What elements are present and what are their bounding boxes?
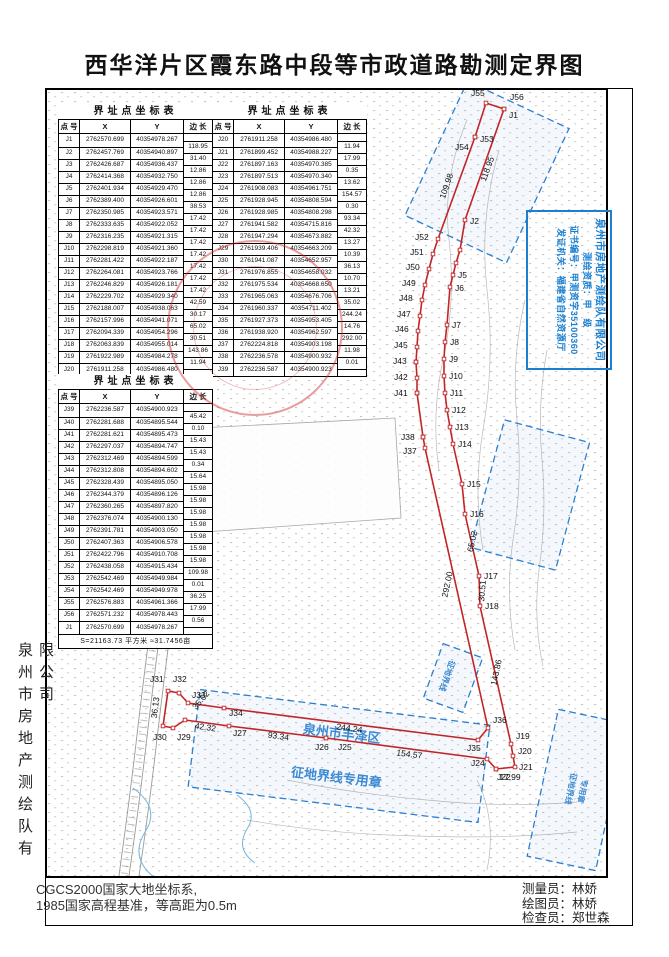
table-cell: 2762298.819 — [80, 243, 131, 255]
boundary-point-marker — [448, 285, 452, 289]
column-header: X — [80, 390, 131, 404]
boundary-point-marker — [454, 261, 458, 265]
boundary-point-marker — [478, 604, 482, 608]
table-cell: 2762576.883 — [80, 597, 131, 609]
boundary-point-marker — [416, 329, 420, 333]
point-label: J18 — [485, 601, 499, 611]
table-cell: 2762389.400 — [80, 195, 131, 207]
point-label: J54 — [455, 142, 469, 152]
table-cell: 2762401.934 — [80, 183, 131, 195]
table-cell: 2761928.945 — [234, 195, 285, 207]
table-cell: J42 — [59, 441, 80, 453]
table-cell: 17.42 — [184, 225, 213, 237]
separator: ： — [560, 897, 573, 911]
table-cell: J3 — [59, 159, 80, 171]
table-cell: J19 — [59, 351, 80, 363]
table-cell: J48 — [59, 513, 80, 525]
point-label: J14 — [458, 439, 472, 449]
table-cell: 40354900.923 — [131, 404, 184, 418]
table-cell: 2762542.469 — [80, 585, 131, 597]
point-label: J15 — [467, 479, 481, 489]
table-cell: J28 — [213, 231, 234, 243]
table-cell: 2761911.258 — [234, 134, 285, 148]
table-cell: 17.99 — [338, 153, 367, 165]
point-label: J17 — [484, 571, 498, 581]
boundary-point-marker — [511, 754, 515, 758]
table-cell: 93.34 — [338, 213, 367, 225]
point-label: J2 — [470, 216, 479, 226]
table-cell: 40354894.602 — [131, 465, 184, 477]
boundary-point-marker — [448, 425, 452, 429]
table-cell: 40354922.187 — [131, 255, 184, 267]
table-cell: 11.98 — [338, 345, 367, 357]
table-cell: J6 — [59, 195, 80, 207]
license-stamp-issuer: 发证机关：福建省自然资源厅 — [554, 212, 567, 368]
table-cell: 40354896.126 — [131, 489, 184, 501]
boundary-point-marker — [415, 376, 419, 380]
boundary-point-marker — [458, 248, 462, 252]
table-cell: 40354903.050 — [131, 525, 184, 537]
table-cell: 109.98 — [184, 567, 213, 579]
point-label: J20 — [518, 746, 532, 756]
table-cell: 15.43 — [184, 435, 213, 447]
column-header: Y — [131, 120, 184, 134]
table-cell: J8 — [59, 219, 80, 231]
point-label: J1 — [509, 110, 518, 120]
red-seal-inner-ring — [193, 266, 317, 390]
table-cell: 12.86 — [184, 165, 213, 177]
point-label: J45 — [394, 340, 408, 350]
table-cell: 40354895.544 — [131, 417, 184, 429]
table-cell: 2762297.037 — [80, 441, 131, 453]
table-cell: 40354808.298 — [285, 207, 338, 219]
table-cell: 13.27 — [338, 237, 367, 249]
boundary-point-marker — [473, 135, 477, 139]
table-cell: J15 — [59, 303, 80, 315]
table-cell: 0.30 — [338, 201, 367, 213]
table-cell: 15.43 — [184, 447, 213, 459]
surveyor-name: 林娇 — [572, 882, 597, 896]
table-cell: 2762312.469 — [80, 453, 131, 465]
table-cell: 40354949.978 — [131, 585, 184, 597]
table-cell: 0.56 — [184, 615, 213, 627]
point-label: J12 — [452, 405, 466, 415]
checker-row: 检查员：郑世森 — [522, 911, 610, 926]
point-label: J27 — [233, 728, 247, 738]
license-stamp-grade: 测绘资质：甲 级 — [580, 212, 593, 368]
column-header: 点 号 — [59, 120, 80, 134]
table-cell: 40354961.366 — [131, 597, 184, 609]
table-cell: 40354921.360 — [131, 243, 184, 255]
table-cell: 17.99 — [184, 603, 213, 615]
table-cell: 35.02 — [338, 297, 367, 309]
table-cell: 40354921.315 — [131, 231, 184, 243]
table-cell: 2762344.379 — [80, 489, 131, 501]
table-cell: 15.98 — [184, 483, 213, 495]
table-cell: 2762414.368 — [80, 171, 131, 183]
table-cell: 2762316.235 — [80, 231, 131, 243]
boundary-point-marker — [418, 314, 422, 318]
credits-block: 测量员：林娇 绘图员：林娇 检查员：郑世森 — [522, 882, 610, 926]
table-cell: J22 — [213, 159, 234, 171]
table-cell: 154.57 — [338, 189, 367, 201]
table-cell: J53 — [59, 573, 80, 585]
table-cell: 118.95 — [184, 141, 213, 153]
table-cell: 13.21 — [338, 285, 367, 297]
point-label: J16 — [470, 509, 484, 519]
table-cell: 2761897.513 — [234, 171, 285, 183]
table-cell: 40354926.601 — [131, 195, 184, 207]
table-cell: J12 — [59, 267, 80, 279]
table-cell: 40354970.340 — [285, 171, 338, 183]
compound-outline — [199, 418, 401, 532]
boundary-point-marker — [222, 706, 226, 710]
table-cell: J41 — [59, 429, 80, 441]
table-cell: 2762246.829 — [80, 279, 131, 291]
boundary-point-marker — [484, 101, 488, 105]
table-cell: J11 — [59, 255, 80, 267]
table-cell: 2762236.587 — [80, 404, 131, 418]
table-cell: 15.98 — [184, 507, 213, 519]
table-cell: J21 — [213, 147, 234, 159]
boundary-point-marker — [171, 726, 175, 730]
point-label: J19 — [516, 731, 530, 741]
table-cell: 17.42 — [184, 213, 213, 225]
boundary-point-table: 点 号XY边 长J392762236.58740354900.923 45.42… — [58, 389, 213, 649]
table-cell: J44 — [59, 465, 80, 477]
table-cell: 0.34 — [184, 459, 213, 471]
column-header: 点 号 — [213, 120, 234, 134]
point-label: J48 — [399, 293, 413, 303]
table-cell: 31.40 — [184, 153, 213, 165]
separator: ： — [560, 911, 573, 925]
table-cell: J16 — [59, 315, 80, 327]
table-cell: 40354915.434 — [131, 561, 184, 573]
boundary-point-marker — [486, 726, 490, 730]
point-label: J55 — [471, 90, 485, 98]
table-cell: 45.42 — [184, 411, 213, 423]
table-cell: J47 — [59, 501, 80, 513]
boundary-point-marker — [161, 724, 165, 728]
point-label: J11 — [450, 388, 463, 398]
checker-label: 检查员 — [522, 911, 560, 925]
table-cell: J40 — [59, 417, 80, 429]
table-cell: J17 — [59, 327, 80, 339]
table-cell: 2762426.687 — [80, 159, 131, 171]
license-stamp-company: 泉州市房地产测绘队有限公司 — [593, 212, 607, 368]
point-label: J46 — [395, 324, 409, 334]
boundary-point-marker — [423, 446, 427, 450]
column-header: Y — [131, 390, 184, 404]
point-label: J25 — [338, 742, 352, 752]
point-label: J31 — [150, 674, 164, 684]
table-cell: 2762281.422 — [80, 255, 131, 267]
table-cell: 15.98 — [184, 543, 213, 555]
table-cell: 40354910.708 — [131, 549, 184, 561]
table-cell: J55 — [59, 597, 80, 609]
table-cell: 2762360.265 — [80, 501, 131, 513]
table-cell: J1 — [59, 134, 80, 148]
table-cell: 2762312.808 — [80, 465, 131, 477]
table-cell: J54 — [59, 585, 80, 597]
table-cell: 40354906.578 — [131, 537, 184, 549]
point-label: J7 — [452, 320, 461, 330]
table-cell: 40354978.443 — [131, 609, 184, 621]
margin-company-name: 泉州市房地产测绘队有限公司 — [14, 642, 56, 882]
table-cell: J18 — [59, 339, 80, 351]
table-cell: 40354929.470 — [131, 183, 184, 195]
table-title: 界址点坐标表 — [58, 104, 213, 119]
table-cell: 40354808.594 — [285, 195, 338, 207]
table-cell: 40354986.480 — [285, 134, 338, 148]
table-cell: 2762542.469 — [80, 573, 131, 585]
table-cell: 2762376.074 — [80, 513, 131, 525]
table-cell: 40354897.820 — [131, 501, 184, 513]
boundary-point-marker — [183, 718, 187, 722]
point-label: J32 — [173, 674, 187, 684]
column-header: 边 长 — [184, 120, 213, 134]
table-cell: J25 — [213, 195, 234, 207]
point-label: J13 — [455, 422, 469, 432]
table-cell: 2761941.582 — [234, 219, 285, 231]
table-cell: 40354932.750 — [131, 171, 184, 183]
drafter-label: 绘图员 — [522, 897, 560, 911]
table-cell: 15.64 — [184, 471, 213, 483]
table-cell: 40354923.766 — [131, 267, 184, 279]
table-cell: 40354894.747 — [131, 441, 184, 453]
segment-length-label: 30.51 — [476, 579, 488, 601]
boundary-point-marker — [414, 360, 418, 364]
table-cell: J23 — [213, 171, 234, 183]
point-label: J43 — [393, 356, 407, 366]
surveyor-label: 测量员 — [522, 882, 560, 896]
boundary-point-marker — [427, 267, 431, 271]
coordinate-table-3: 界址点坐标表点 号XY边 长J392762236.58740354900.923… — [58, 374, 213, 649]
table-cell: 11.94 — [338, 141, 367, 153]
point-label: J52 — [415, 232, 429, 242]
boundary-point-marker — [324, 736, 328, 740]
table-cell: J45 — [59, 477, 80, 489]
table-cell: 2762188.007 — [80, 303, 131, 315]
table-cell: 36.25 — [184, 591, 213, 603]
point-label: J30 — [153, 732, 167, 742]
table-cell: 2761908.083 — [234, 183, 285, 195]
table-cell — [184, 134, 213, 142]
point-label: J36 — [493, 715, 507, 725]
point-label: J35 — [467, 743, 481, 753]
table-cell: 2762350.985 — [80, 207, 131, 219]
table-cell: J10 — [59, 243, 80, 255]
table-cell: J26 — [213, 207, 234, 219]
boundary-point-marker — [431, 252, 435, 256]
boundary-point-marker — [423, 283, 427, 287]
boundary-point-marker — [445, 323, 449, 327]
table-cell: 2761899.452 — [234, 147, 285, 159]
table-cell: J4 — [59, 171, 80, 183]
boundary-point-marker — [436, 237, 440, 241]
table-cell: J20 — [213, 134, 234, 148]
table-cell: 2761897.163 — [234, 159, 285, 171]
separator: ： — [560, 882, 573, 896]
table-cell: 0.01 — [184, 579, 213, 591]
page-title: 西华洋片区霞东路中段等市政道路勘测定界图 — [45, 46, 624, 80]
table-cell: 2762328.439 — [80, 477, 131, 489]
table-cell: J50 — [59, 537, 80, 549]
boundary-point-marker — [443, 340, 447, 344]
boundary-point-marker — [451, 442, 455, 446]
boundary-point-marker — [177, 691, 181, 695]
table-cell: 2762157.996 — [80, 315, 131, 327]
table-cell: 40354988.227 — [285, 147, 338, 159]
table-cell: J52 — [59, 561, 80, 573]
boundary-point-marker — [442, 374, 446, 378]
boundary-point-marker — [420, 298, 424, 302]
table-cell — [184, 404, 213, 412]
point-label: J6 — [455, 283, 464, 293]
boundary-point-marker — [451, 273, 455, 277]
boundary-point-marker — [494, 767, 498, 771]
table-cell: J49 — [59, 525, 80, 537]
boundary-point-marker — [476, 738, 480, 742]
table-cell: J9 — [59, 231, 80, 243]
table-cell: 42.32 — [338, 225, 367, 237]
table-cell: 2762063.839 — [80, 339, 131, 351]
table-cell: J7 — [59, 207, 80, 219]
table-cell: J13 — [59, 279, 80, 291]
table-cell: 2761922.989 — [80, 351, 131, 363]
point-label: J51 — [410, 247, 424, 257]
table-cell: 40354978.267 — [131, 134, 184, 148]
table-cell: 2762438.058 — [80, 561, 131, 573]
license-stamp-certificate: 证书编号：甲测资字35100360 — [567, 212, 580, 368]
boundary-point-marker — [186, 701, 190, 705]
segment-length-label: 17.99 — [499, 772, 521, 782]
point-label: J34 — [229, 708, 243, 718]
red-seal-stamp — [167, 240, 343, 416]
table-cell: 2762281.688 — [80, 417, 131, 429]
boundary-point-marker — [485, 757, 489, 761]
license-stamp: 泉州市房地产测绘队有限公司 测绘资质：甲 级 证书编号：甲测资字35100360… — [526, 210, 612, 370]
table-cell: 2762229.702 — [80, 291, 131, 303]
boundary-point-marker — [166, 689, 170, 693]
point-label: J5 — [458, 270, 467, 280]
survey-sheet: 西华洋片区霞东路中段等市政道路勘测定界图 — [0, 0, 669, 957]
table-cell: 40354978.267 — [131, 621, 184, 635]
point-label: J42 — [394, 372, 408, 382]
point-label: J21 — [519, 762, 533, 772]
table-cell: 12.86 — [184, 177, 213, 189]
table-cell: 2762264.081 — [80, 267, 131, 279]
table-title: 界址点坐标表 — [212, 104, 367, 119]
datum-notes: CGCS2000国家大地坐标系, 1985国家高程基准，等高距为0.5m — [36, 882, 237, 914]
table-cell: 40354673.882 — [285, 231, 338, 243]
point-label: J56 — [510, 92, 524, 102]
boundary-point-marker — [477, 574, 481, 578]
boundary-point-marker — [415, 345, 419, 349]
point-label: J37 — [403, 446, 417, 456]
boundary-point-marker — [463, 512, 467, 516]
table-cell: J27 — [213, 219, 234, 231]
surveyor-row: 测量员：林娇 — [522, 882, 610, 897]
table-cell: J43 — [59, 453, 80, 465]
table-cell: 40354923.571 — [131, 207, 184, 219]
boundary-point-marker — [415, 391, 419, 395]
boundary-point-marker — [460, 482, 464, 486]
point-label: J49 — [402, 278, 416, 288]
table-cell: 40354895.473 — [131, 429, 184, 441]
point-label: J24 — [471, 758, 485, 768]
table-cell: 12.86 — [184, 189, 213, 201]
table-cell: 40354940.897 — [131, 147, 184, 159]
column-header: 边 长 — [338, 120, 367, 134]
table-cell — [338, 134, 367, 142]
table-cell: 40354936.437 — [131, 159, 184, 171]
point-label: J53 — [480, 134, 494, 144]
table-cell: 2762571.232 — [80, 609, 131, 621]
table-cell: 40354894.599 — [131, 453, 184, 465]
point-label: J50 — [406, 262, 420, 272]
column-header: Y — [285, 120, 338, 134]
column-header: X — [234, 120, 285, 134]
table-cell: 15.98 — [184, 495, 213, 507]
table-cell: 2762281.621 — [80, 429, 131, 441]
table-cell: J51 — [59, 549, 80, 561]
table-cell: 40354949.984 — [131, 573, 184, 585]
column-header: 点 号 — [59, 390, 80, 404]
drafter-row: 绘图员：林娇 — [522, 897, 610, 912]
table-cell: 2762407.363 — [80, 537, 131, 549]
table-cell: 2762422.796 — [80, 549, 131, 561]
table-cell: J14 — [59, 291, 80, 303]
table-cell: 40354895.050 — [131, 477, 184, 489]
table-cell: 10.70 — [338, 273, 367, 285]
table-cell: 40354715.816 — [285, 219, 338, 231]
point-label: J41 — [394, 388, 408, 398]
point-label: J38 — [401, 432, 415, 442]
table-cell: 15.98 — [184, 519, 213, 531]
table-cell: 2762094.339 — [80, 327, 131, 339]
datum-note-line2: 1985国家高程基准，等高距为0.5m — [36, 898, 237, 914]
point-label: J47 — [397, 309, 411, 319]
table-cell: 2762457.769 — [80, 147, 131, 159]
table-cell: 17.42 — [184, 237, 213, 249]
table-cell — [338, 369, 367, 377]
table-cell: 40354900.130 — [131, 513, 184, 525]
table-cell — [184, 627, 213, 635]
datum-note-line1: CGCS2000国家大地坐标系, — [36, 882, 237, 898]
table-cell: J39 — [59, 404, 80, 418]
point-label: J10 — [449, 371, 463, 381]
boundary-point-marker — [445, 408, 449, 412]
boundary-point-marker — [463, 218, 467, 222]
boundary-point-marker — [442, 357, 446, 361]
table-cell: 2762333.635 — [80, 219, 131, 231]
boundary-point-marker — [443, 391, 447, 395]
table-cell: 38.53 — [184, 201, 213, 213]
table-cell: 40354922.052 — [131, 219, 184, 231]
table-cell: J56 — [59, 609, 80, 621]
table-cell: 40354961.751 — [285, 183, 338, 195]
table-cell: J24 — [213, 183, 234, 195]
table-cell: 36.13 — [338, 261, 367, 273]
table-cell: 15.98 — [184, 531, 213, 543]
table-cell: J2 — [59, 147, 80, 159]
boundary-point-marker — [513, 765, 517, 769]
checker-name: 郑世森 — [572, 911, 610, 925]
table-cell: 2762570.699 — [80, 621, 131, 635]
drafter-name: 林娇 — [572, 897, 597, 911]
table-cell: J5 — [59, 183, 80, 195]
